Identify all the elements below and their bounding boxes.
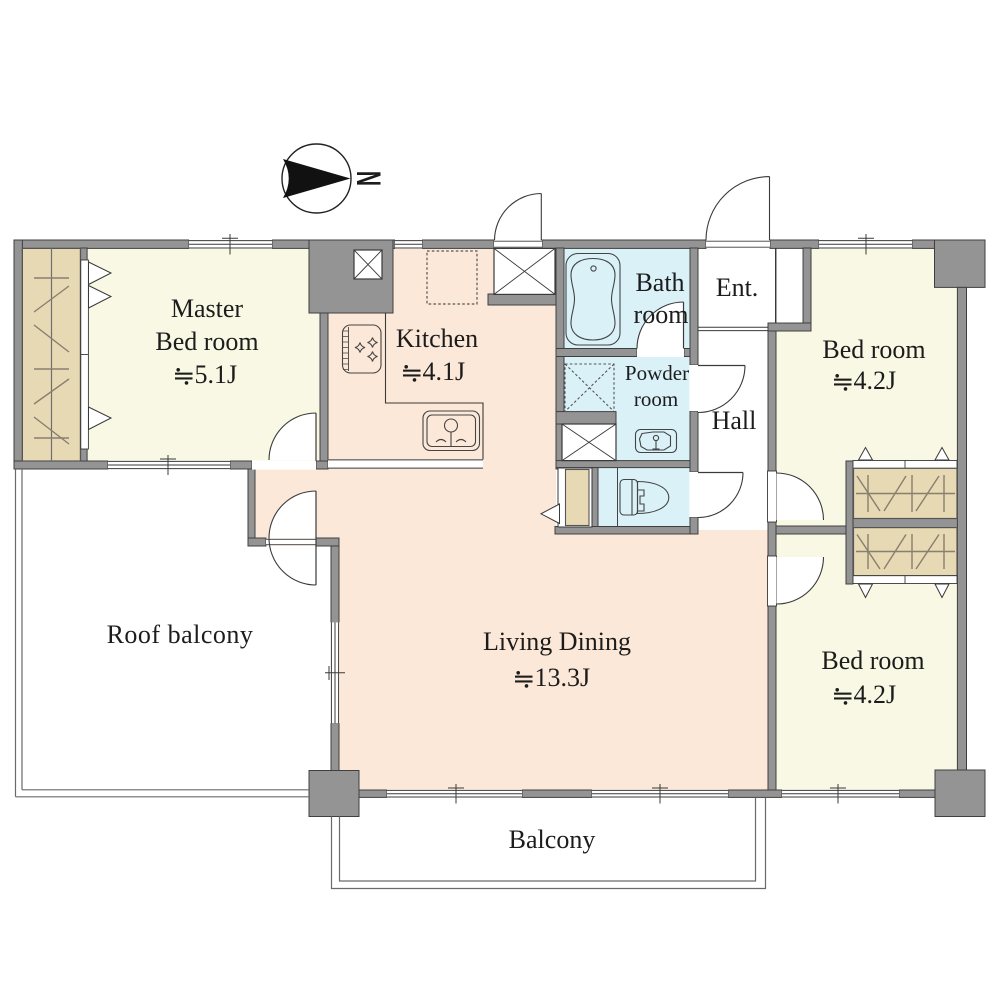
svg-text:4.1J: 4.1J [423, 357, 466, 386]
svg-text:Hall: Hall [712, 406, 757, 435]
svg-text:Bed room: Bed room [155, 327, 258, 356]
svg-text:Balcony: Balcony [509, 825, 596, 854]
svg-text:Bed room: Bed room [821, 646, 924, 675]
svg-text:Kitchen: Kitchen [396, 324, 478, 353]
svg-text:Powder: Powder [625, 361, 689, 385]
svg-text:4.2J: 4.2J [854, 366, 897, 395]
svg-text:Master: Master [171, 294, 244, 323]
svg-text:13.3J: 13.3J [535, 663, 591, 692]
svg-text:Roof balcony: Roof balcony [107, 620, 254, 649]
svg-text:Bath: Bath [635, 268, 684, 297]
svg-text:Bed room: Bed room [822, 335, 925, 364]
svg-text:room: room [634, 387, 678, 411]
svg-text:4.2J: 4.2J [854, 680, 897, 709]
svg-text:5.1J: 5.1J [195, 360, 238, 389]
svg-text:Living Dining: Living Dining [483, 627, 631, 656]
svg-text:N: N [348, 171, 387, 186]
svg-text:room: room [634, 300, 689, 329]
svg-text:Ent.: Ent. [716, 273, 759, 302]
